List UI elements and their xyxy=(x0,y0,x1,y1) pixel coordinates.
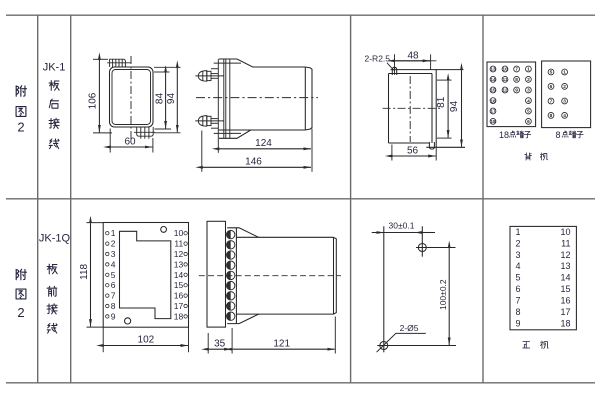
svg-text:1: 1 xyxy=(563,70,566,76)
svg-text:12: 12 xyxy=(174,249,184,259)
svg-text:2: 2 xyxy=(17,120,24,135)
svg-text:3: 3 xyxy=(527,88,530,94)
svg-text:14: 14 xyxy=(174,270,184,280)
svg-text:11: 11 xyxy=(561,238,570,248)
svg-text:7: 7 xyxy=(515,67,518,73)
svg-text:2-Ø5: 2-Ø5 xyxy=(400,323,419,333)
svg-text:12: 12 xyxy=(560,250,570,260)
svg-text:9: 9 xyxy=(111,311,116,321)
svg-text:11: 11 xyxy=(174,239,183,249)
svg-text:10: 10 xyxy=(560,227,570,237)
svg-text:100±0.2: 100±0.2 xyxy=(438,279,448,310)
svg-text:94: 94 xyxy=(166,93,177,105)
svg-text:3: 3 xyxy=(111,249,116,259)
svg-text:118: 118 xyxy=(79,263,90,279)
svg-text:1: 1 xyxy=(527,67,530,73)
svg-text:16: 16 xyxy=(560,296,570,306)
svg-text:10: 10 xyxy=(502,67,508,73)
svg-text:15: 15 xyxy=(490,88,496,94)
svg-text:17: 17 xyxy=(560,307,570,317)
svg-text:81: 81 xyxy=(436,96,447,108)
svg-text:2: 2 xyxy=(527,77,530,83)
svg-text:17: 17 xyxy=(490,109,496,115)
svg-text:106: 106 xyxy=(88,92,99,109)
svg-text:4: 4 xyxy=(527,98,530,104)
svg-text:4: 4 xyxy=(516,261,521,271)
svg-text:15: 15 xyxy=(174,280,184,290)
svg-text:48: 48 xyxy=(407,51,419,62)
svg-text:5: 5 xyxy=(516,273,521,283)
svg-text:18: 18 xyxy=(490,119,496,125)
svg-text:9: 9 xyxy=(516,318,521,328)
svg-text:6: 6 xyxy=(111,280,116,290)
svg-text:18: 18 xyxy=(174,311,184,321)
svg-text:102: 102 xyxy=(138,335,155,346)
svg-text:3: 3 xyxy=(563,99,566,105)
svg-text:3: 3 xyxy=(516,250,521,260)
svg-text:16: 16 xyxy=(174,291,184,301)
svg-text:146: 146 xyxy=(245,156,262,167)
svg-text:8: 8 xyxy=(556,130,561,140)
svg-text:14: 14 xyxy=(490,77,496,83)
svg-text:6: 6 xyxy=(527,119,530,125)
svg-text:11: 11 xyxy=(502,77,507,83)
svg-text:121: 121 xyxy=(273,338,290,349)
svg-text:8: 8 xyxy=(515,77,518,83)
svg-text:1: 1 xyxy=(516,227,521,237)
svg-text:14: 14 xyxy=(560,273,570,283)
svg-text:12: 12 xyxy=(502,88,508,94)
svg-text:6: 6 xyxy=(516,284,521,294)
svg-text:17: 17 xyxy=(174,301,184,311)
svg-text:4: 4 xyxy=(563,113,566,119)
svg-text:7: 7 xyxy=(516,296,521,306)
svg-text:16: 16 xyxy=(490,98,496,104)
svg-text:JK-1Q: JK-1Q xyxy=(39,233,71,245)
svg-text:8: 8 xyxy=(550,113,553,119)
svg-text:2-R2.5: 2-R2.5 xyxy=(365,54,391,64)
svg-text:2: 2 xyxy=(563,84,566,90)
svg-text:18: 18 xyxy=(499,130,509,140)
svg-text:30±0.1: 30±0.1 xyxy=(389,221,415,231)
svg-text:84: 84 xyxy=(154,93,165,105)
svg-text:7: 7 xyxy=(550,99,553,105)
svg-text:18: 18 xyxy=(560,318,570,328)
svg-text:60: 60 xyxy=(124,137,136,148)
svg-text:1: 1 xyxy=(111,228,116,238)
svg-text:124: 124 xyxy=(255,138,272,149)
svg-text:15: 15 xyxy=(560,284,570,294)
svg-text:2: 2 xyxy=(17,305,24,320)
svg-text:7: 7 xyxy=(111,291,116,301)
svg-text:35: 35 xyxy=(214,338,226,349)
svg-text:JK-1: JK-1 xyxy=(43,62,66,74)
svg-text:13: 13 xyxy=(560,261,570,271)
svg-text:13: 13 xyxy=(174,259,184,269)
svg-text:56: 56 xyxy=(407,146,419,157)
svg-text:13: 13 xyxy=(490,67,496,73)
svg-text:5: 5 xyxy=(550,70,553,76)
svg-text:94: 94 xyxy=(449,101,460,113)
svg-text:6: 6 xyxy=(550,84,553,90)
svg-text:8: 8 xyxy=(111,301,116,311)
svg-text:4: 4 xyxy=(111,259,116,269)
svg-text:5: 5 xyxy=(111,270,116,280)
svg-text:2: 2 xyxy=(111,239,116,249)
svg-text:5: 5 xyxy=(527,109,530,115)
svg-text:10: 10 xyxy=(174,228,184,238)
svg-text:8: 8 xyxy=(516,307,521,317)
svg-text:9: 9 xyxy=(515,88,518,94)
svg-text:2: 2 xyxy=(516,238,521,248)
